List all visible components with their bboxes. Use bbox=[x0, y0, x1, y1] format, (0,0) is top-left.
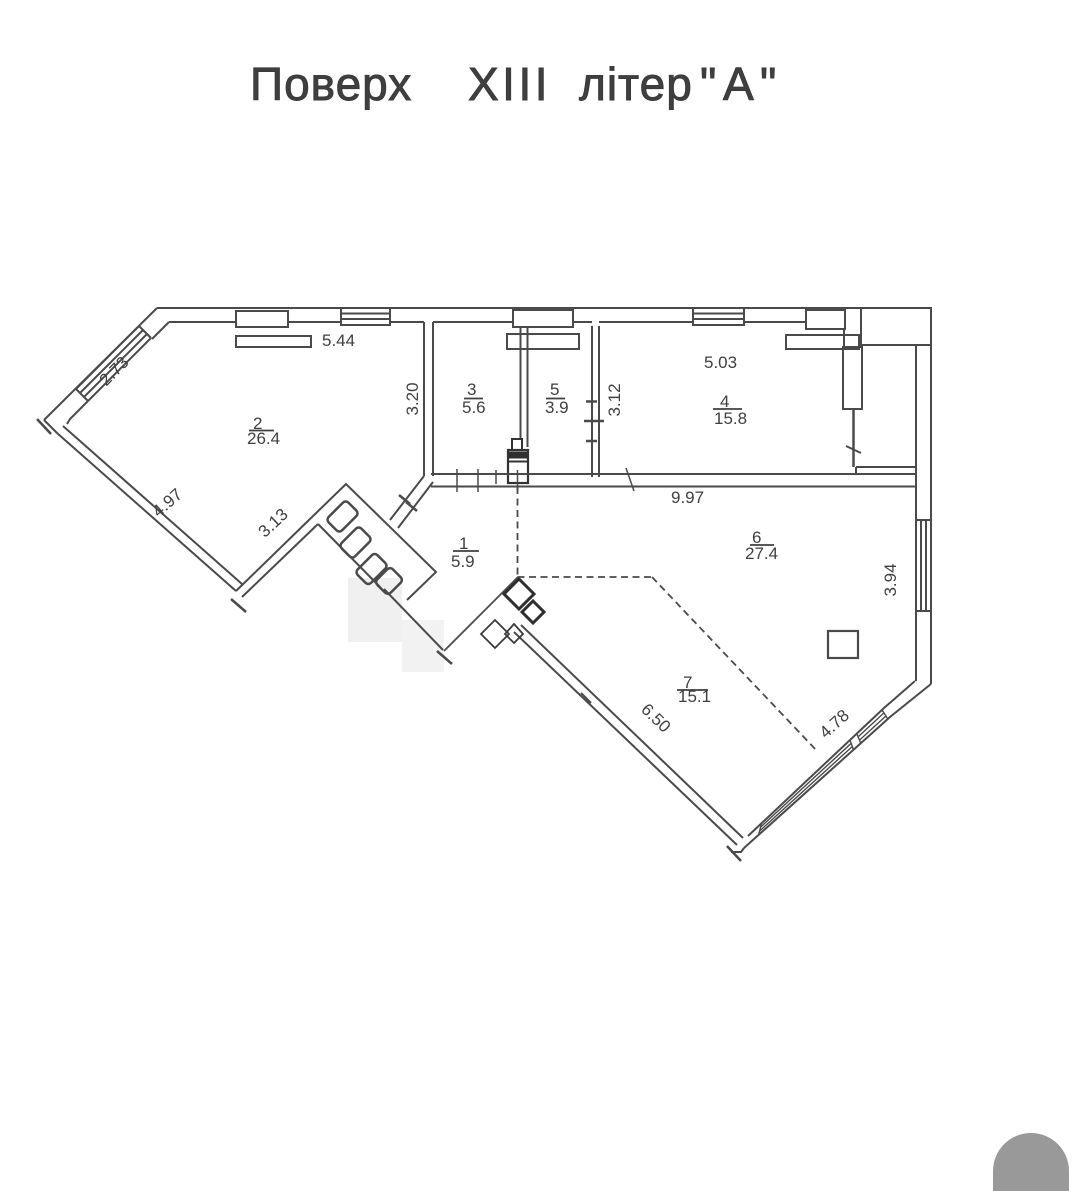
svg-text:15.8: 15.8 bbox=[714, 409, 747, 428]
svg-text:5: 5 bbox=[550, 380, 559, 399]
svg-text:5.44: 5.44 bbox=[322, 331, 355, 350]
svg-text:3.9: 3.9 bbox=[545, 398, 569, 417]
svg-text:27.4: 27.4 bbox=[745, 544, 778, 563]
svg-text:5.03: 5.03 bbox=[704, 353, 737, 372]
svg-text:3.20: 3.20 bbox=[403, 382, 422, 415]
svg-text:5.6: 5.6 bbox=[462, 398, 486, 417]
svg-text:3: 3 bbox=[467, 380, 476, 399]
svg-text:15.1: 15.1 bbox=[678, 687, 711, 706]
svg-text:3.94: 3.94 bbox=[881, 563, 900, 596]
svg-text:26.4: 26.4 bbox=[247, 429, 280, 448]
svg-text:3.12: 3.12 bbox=[605, 383, 624, 416]
svg-text:5.9: 5.9 bbox=[451, 552, 475, 571]
svg-text:9.97: 9.97 bbox=[671, 488, 704, 507]
